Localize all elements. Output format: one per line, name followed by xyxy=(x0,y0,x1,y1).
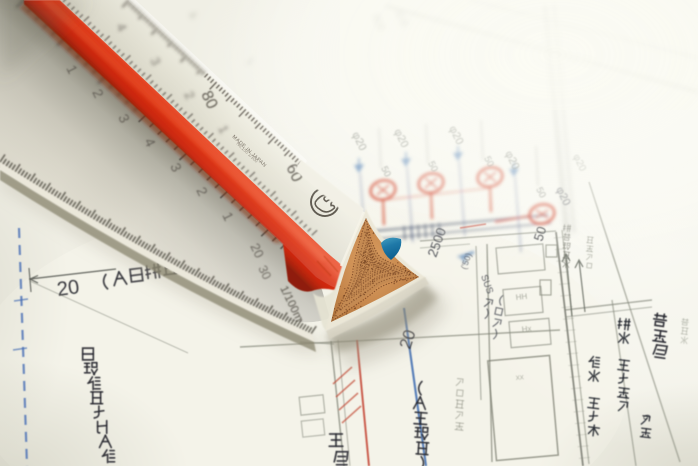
svg-text:20: 20 xyxy=(56,276,81,301)
svg-text:HH: HH xyxy=(515,292,528,302)
svg-text:Hx: Hx xyxy=(521,324,532,334)
svg-text:xx: xx xyxy=(515,372,524,382)
